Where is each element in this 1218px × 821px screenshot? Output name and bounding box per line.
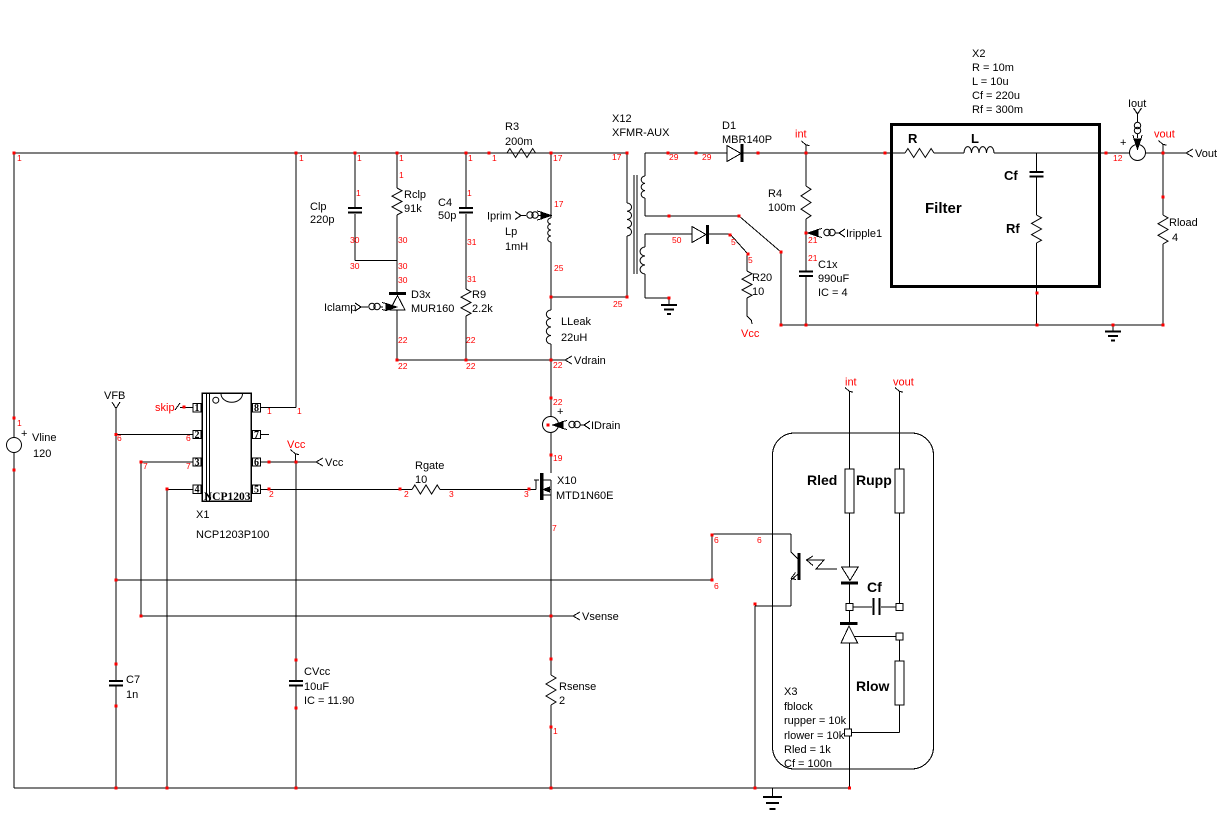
svg-text:2: 2 [404, 489, 409, 499]
svg-text:31: 31 [467, 237, 477, 247]
svg-text:50p: 50p [438, 210, 456, 222]
svg-text:2: 2 [195, 430, 200, 441]
svg-text:L: L [971, 131, 979, 146]
svg-text:2: 2 [559, 695, 565, 707]
svg-text:IC = 11.90: IC = 11.90 [304, 695, 354, 707]
svg-text:vout: vout [1154, 129, 1175, 141]
svg-text:30: 30 [350, 261, 360, 271]
svg-text:91k: 91k [404, 203, 422, 215]
svg-text:IC = 4: IC = 4 [818, 287, 848, 299]
svg-text:+: + [557, 406, 563, 418]
svg-text:Rgate: Rgate [415, 460, 444, 472]
svg-text:50: 50 [672, 235, 682, 245]
svg-text:200m: 200m [505, 136, 533, 148]
svg-text:Iclamp: Iclamp [324, 302, 356, 314]
svg-text:1: 1 [357, 153, 362, 163]
svg-text:L = 10u: L = 10u [972, 76, 1009, 88]
svg-text:12: 12 [1113, 153, 1123, 163]
svg-text:Iout: Iout [1128, 98, 1146, 110]
svg-text:Vcc: Vcc [325, 457, 344, 469]
svg-text:+: + [1120, 137, 1126, 149]
svg-text:C7: C7 [126, 674, 140, 686]
svg-text:Rload: Rload [1169, 217, 1198, 229]
svg-text:7: 7 [186, 461, 191, 471]
svg-text:5: 5 [254, 485, 259, 496]
svg-text:22: 22 [553, 397, 563, 407]
svg-text:7: 7 [254, 430, 259, 441]
svg-text:Vsense: Vsense [582, 611, 619, 623]
svg-text:R20: R20 [752, 272, 772, 284]
svg-text:25: 25 [613, 299, 623, 309]
svg-text:int: int [795, 129, 807, 141]
svg-text:1mH: 1mH [505, 241, 528, 253]
svg-text:Rupp: Rupp [856, 472, 892, 488]
svg-text:Cf = 100n: Cf = 100n [784, 758, 832, 770]
svg-text:NCP1203: NCP1203 [204, 491, 251, 503]
svg-text:X12: X12 [612, 113, 632, 125]
svg-text:R: R [908, 131, 918, 146]
svg-text:1: 1 [399, 153, 404, 163]
svg-text:Cf: Cf [867, 579, 882, 595]
svg-text:R4: R4 [768, 188, 782, 200]
svg-text:1: 1 [553, 726, 558, 736]
svg-text:Vcc: Vcc [741, 328, 760, 340]
svg-text:30: 30 [398, 261, 408, 271]
svg-text:30: 30 [398, 235, 408, 245]
svg-text:MUR160: MUR160 [411, 303, 454, 315]
svg-text:1: 1 [267, 406, 272, 416]
svg-text:10: 10 [415, 474, 427, 486]
svg-text:Rf: Rf [1006, 221, 1020, 236]
svg-text:8: 8 [254, 403, 259, 414]
svg-text:5: 5 [748, 255, 753, 265]
svg-text:X3: X3 [784, 686, 797, 698]
svg-text:29: 29 [702, 152, 712, 162]
svg-text:X2: X2 [972, 48, 985, 60]
svg-text:D1: D1 [722, 120, 736, 132]
svg-text:MBR140P: MBR140P [722, 134, 772, 146]
svg-text:Cf = 220u: Cf = 220u [972, 90, 1020, 102]
svg-text:22uH: 22uH [561, 332, 587, 344]
svg-text:Clp: Clp [310, 201, 327, 213]
svg-text:6: 6 [757, 535, 762, 545]
svg-text:skip: skip [155, 402, 175, 414]
svg-text:VFB: VFB [104, 390, 125, 402]
svg-text:5: 5 [731, 237, 736, 247]
svg-text:29: 29 [669, 152, 679, 162]
svg-text:C4: C4 [438, 197, 452, 209]
svg-text:Rsense: Rsense [559, 681, 596, 693]
svg-text:vout: vout [893, 377, 914, 389]
svg-text:10: 10 [752, 286, 764, 298]
svg-text:Vline: Vline [32, 432, 56, 444]
svg-text:10uF: 10uF [304, 681, 329, 693]
svg-text:1n: 1n [126, 689, 138, 701]
svg-text:Vout: Vout [1195, 148, 1217, 160]
svg-text:R = 10m: R = 10m [972, 62, 1014, 74]
svg-text:2.2k: 2.2k [472, 303, 493, 315]
svg-text:21: 21 [808, 235, 818, 245]
svg-text:22: 22 [398, 361, 408, 371]
svg-text:rlower = 10k: rlower = 10k [784, 730, 845, 742]
svg-text:Iripple1: Iripple1 [846, 228, 882, 240]
svg-text:rupper = 10k: rupper = 10k [784, 715, 847, 727]
svg-text:Rled: Rled [807, 472, 837, 488]
svg-text:17: 17 [612, 152, 622, 162]
svg-text:6: 6 [117, 433, 122, 443]
svg-text:120: 120 [33, 448, 51, 460]
svg-text:2: 2 [269, 489, 274, 499]
svg-text:Vdrain: Vdrain [574, 355, 606, 367]
svg-text:3: 3 [524, 489, 529, 499]
svg-text:1: 1 [297, 406, 302, 416]
svg-text:1: 1 [468, 153, 473, 163]
svg-text:NCP1203P100: NCP1203P100 [196, 529, 269, 541]
svg-text:IDrain: IDrain [591, 420, 620, 432]
svg-text:Rf = 300m: Rf = 300m [972, 104, 1023, 116]
svg-text:1: 1 [195, 403, 200, 414]
svg-text:D3x: D3x [411, 289, 431, 301]
svg-text:+: + [21, 428, 27, 440]
svg-text:X1: X1 [196, 509, 209, 521]
svg-text:30: 30 [398, 275, 408, 285]
svg-text:19: 19 [553, 453, 563, 463]
svg-text:Filter: Filter [925, 200, 962, 217]
svg-text:7: 7 [552, 523, 557, 533]
svg-text:XFMR-AUX: XFMR-AUX [612, 127, 670, 139]
svg-text:int: int [845, 377, 857, 389]
svg-text:21: 21 [808, 253, 818, 263]
svg-text:MTD1N60E: MTD1N60E [556, 490, 613, 502]
svg-text:Vcc: Vcc [287, 439, 306, 451]
svg-text:17: 17 [554, 199, 564, 209]
svg-text:6: 6 [714, 581, 719, 591]
svg-text:1: 1 [467, 188, 472, 198]
svg-text:1: 1 [17, 153, 22, 163]
svg-text:25: 25 [554, 263, 564, 273]
svg-text:R9: R9 [472, 289, 486, 301]
svg-text:3: 3 [449, 489, 454, 499]
svg-text:Lp: Lp [505, 226, 517, 238]
svg-text:1: 1 [356, 188, 361, 198]
svg-text:Rlow: Rlow [856, 678, 890, 694]
svg-text:6: 6 [186, 433, 191, 443]
svg-text:30: 30 [350, 235, 360, 245]
svg-text:Cf: Cf [1004, 168, 1018, 183]
svg-text:C1x: C1x [818, 259, 838, 271]
svg-text:CVcc: CVcc [304, 666, 331, 678]
svg-text:Rclp: Rclp [404, 189, 426, 201]
svg-text:220p: 220p [310, 214, 334, 226]
svg-text:22: 22 [466, 335, 476, 345]
svg-text:Rled = 1k: Rled = 1k [784, 744, 831, 756]
svg-text:1: 1 [399, 170, 404, 180]
svg-text:22: 22 [398, 335, 408, 345]
svg-text:4: 4 [1172, 232, 1178, 244]
svg-text:LLeak: LLeak [561, 316, 591, 328]
svg-text:Iprim: Iprim [487, 211, 511, 223]
svg-text:31: 31 [467, 274, 477, 284]
svg-text:1: 1 [492, 153, 497, 163]
svg-text:4: 4 [195, 485, 200, 496]
svg-text:6: 6 [714, 535, 719, 545]
svg-text:7: 7 [143, 461, 148, 471]
svg-text:1: 1 [299, 153, 304, 163]
svg-text:X10: X10 [557, 475, 577, 487]
svg-text:100m: 100m [768, 202, 796, 214]
svg-text:17: 17 [553, 153, 563, 163]
svg-text:990uF: 990uF [818, 273, 849, 285]
svg-text:6: 6 [254, 457, 259, 468]
svg-text:22: 22 [466, 361, 476, 371]
svg-text:fblock: fblock [784, 701, 813, 713]
svg-text:1: 1 [17, 418, 22, 428]
svg-text:22: 22 [553, 360, 563, 370]
svg-text:R3: R3 [505, 121, 519, 133]
svg-text:3: 3 [195, 457, 200, 468]
